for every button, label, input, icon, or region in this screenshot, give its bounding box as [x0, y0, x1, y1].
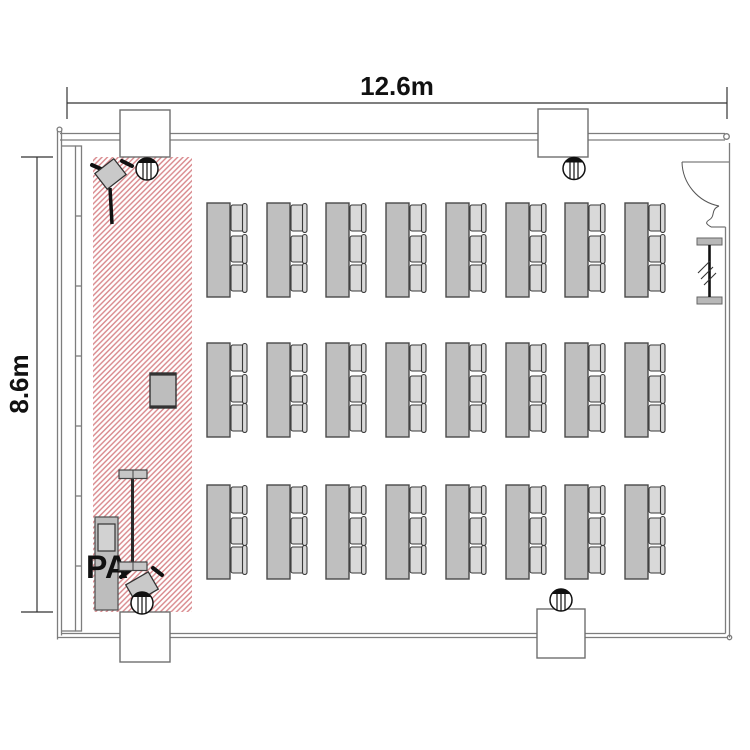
chair-back: [422, 264, 427, 293]
chair-back: [422, 375, 427, 404]
desk: [386, 485, 426, 579]
desk: [207, 485, 247, 579]
lectern: [150, 373, 176, 408]
chair-back: [542, 235, 547, 264]
ceiling-speaker-icon: [131, 592, 153, 614]
wall-cap-top-left: [57, 127, 62, 132]
chair-back: [482, 517, 487, 546]
desk-table: [326, 203, 349, 297]
chair-back: [303, 486, 308, 515]
column-bottom-left: [120, 612, 170, 662]
ceiling-speaker-icon: [136, 158, 158, 180]
desk-table: [267, 343, 290, 437]
chair-back: [362, 264, 367, 293]
chair-back: [243, 546, 248, 575]
chair-back: [601, 235, 606, 264]
chair-back: [362, 486, 367, 515]
ceiling-speaker-icon: [550, 589, 572, 611]
chair-back: [243, 204, 248, 233]
chair-back: [422, 404, 427, 433]
desk-table: [207, 343, 230, 437]
desk: [207, 343, 247, 437]
chair-back: [303, 517, 308, 546]
desk: [326, 343, 366, 437]
desk-table: [326, 343, 349, 437]
desk-table: [267, 485, 290, 579]
chair-back: [422, 546, 427, 575]
chair-back: [303, 375, 308, 404]
chair-back: [303, 264, 308, 293]
desk: [565, 485, 605, 579]
chair-back: [303, 546, 308, 575]
chair-back: [243, 404, 248, 433]
desk: [267, 343, 307, 437]
chair-back: [362, 375, 367, 404]
chair-back: [661, 264, 666, 293]
pa-rack-unit: [98, 524, 115, 551]
desk-table: [625, 203, 648, 297]
chair-back: [661, 404, 666, 433]
desk-table: [207, 203, 230, 297]
desk-table: [267, 203, 290, 297]
chair-back: [243, 344, 248, 373]
chair-back: [601, 517, 606, 546]
chair-back: [482, 404, 487, 433]
desk: [506, 485, 546, 579]
wall-left-panels: [62, 146, 82, 631]
chair-back: [542, 404, 547, 433]
wall-cap-top-right: [724, 134, 730, 140]
chair-back: [482, 235, 487, 264]
partition-ticks: [698, 261, 716, 285]
chair-back: [243, 486, 248, 515]
chair-back: [243, 235, 248, 264]
chair-back: [482, 546, 487, 575]
partition-cap-bottom: [697, 297, 722, 304]
partition-rail: [697, 238, 722, 304]
column-bottom-right: [537, 609, 585, 658]
chair-back: [482, 486, 487, 515]
chair-back: [362, 204, 367, 233]
chair-back: [303, 204, 308, 233]
chair-back: [482, 375, 487, 404]
chair-back: [661, 235, 666, 264]
desk-table: [446, 343, 469, 437]
chair-back: [422, 486, 427, 515]
desk-table: [565, 343, 588, 437]
desk-table: [506, 203, 529, 297]
chair-back: [243, 264, 248, 293]
desk: [267, 203, 307, 297]
desk-table: [625, 485, 648, 579]
chair-back: [661, 546, 666, 575]
chair-back: [542, 375, 547, 404]
door-break-squiggle: [707, 206, 719, 227]
desk-table: [565, 203, 588, 297]
chair-back: [542, 344, 547, 373]
chair-back: [303, 344, 308, 373]
chair-back: [362, 517, 367, 546]
desk-table: [565, 485, 588, 579]
desk-table: [326, 485, 349, 579]
chair-back: [542, 264, 547, 293]
chair-back: [601, 404, 606, 433]
desk: [326, 203, 366, 297]
desk-table: [207, 485, 230, 579]
desk-table: [625, 343, 648, 437]
desk-table: [386, 343, 409, 437]
ceiling-speaker-icon: [563, 158, 585, 180]
chair-back: [601, 546, 606, 575]
chair-back: [422, 344, 427, 373]
chair-back: [303, 235, 308, 264]
chair-back: [601, 344, 606, 373]
chair-back: [482, 204, 487, 233]
desks-layer: [207, 203, 665, 579]
desk-table: [506, 485, 529, 579]
chair-back: [243, 375, 248, 404]
door-swing-arc: [682, 162, 719, 206]
chair-back: [422, 517, 427, 546]
chair-back: [422, 235, 427, 264]
desk: [506, 343, 546, 437]
desk: [267, 485, 307, 579]
floor-plan-canvas: 12.6m 8.6m: [0, 0, 750, 750]
chair-back: [542, 546, 547, 575]
desk: [446, 485, 486, 579]
column-top-right: [538, 109, 588, 157]
desk: [625, 485, 665, 579]
dimension-height: 8.6m: [4, 157, 53, 612]
desk: [506, 203, 546, 297]
chair-back: [422, 204, 427, 233]
chair-back: [661, 517, 666, 546]
floor-plan: 12.6m 8.6m: [0, 0, 750, 750]
chair-back: [661, 486, 666, 515]
door: [682, 162, 730, 227]
chair-back: [542, 517, 547, 546]
desk-table: [386, 485, 409, 579]
chair-back: [542, 486, 547, 515]
chair-back: [303, 404, 308, 433]
chair-back: [601, 486, 606, 515]
chair-back: [661, 204, 666, 233]
chair-back: [362, 344, 367, 373]
desk: [446, 203, 486, 297]
chair-back: [601, 204, 606, 233]
chair-back: [601, 264, 606, 293]
chair-back: [482, 344, 487, 373]
desk-table: [386, 203, 409, 297]
desk: [565, 203, 605, 297]
chair-back: [362, 546, 367, 575]
desk-table: [446, 485, 469, 579]
chair-back: [362, 404, 367, 433]
chair-back: [243, 517, 248, 546]
chair-back: [661, 375, 666, 404]
chair-back: [661, 344, 666, 373]
desk: [326, 485, 366, 579]
partition-cap-top: [697, 238, 722, 245]
chair-back: [601, 375, 606, 404]
desk-table: [506, 343, 529, 437]
column-top-left: [120, 110, 170, 157]
dimension-width-label: 12.6m: [360, 71, 434, 101]
desk: [386, 343, 426, 437]
desk: [625, 343, 665, 437]
desk: [207, 203, 247, 297]
chair-back: [362, 235, 367, 264]
desk: [386, 203, 426, 297]
dimension-height-label: 8.6m: [4, 354, 34, 413]
desk: [446, 343, 486, 437]
desk: [565, 343, 605, 437]
chair-back: [482, 264, 487, 293]
desk: [625, 203, 665, 297]
chair-back: [542, 204, 547, 233]
desk-table: [446, 203, 469, 297]
